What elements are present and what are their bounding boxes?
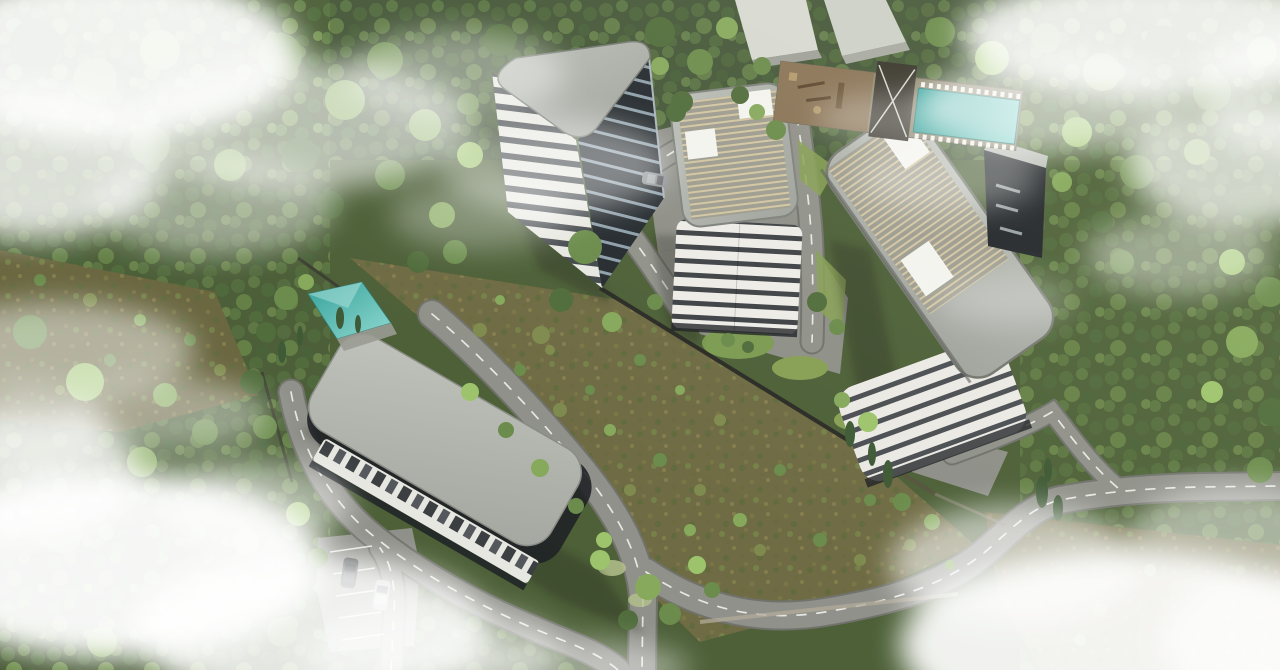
cloud-wisp xyxy=(935,274,1075,326)
aerial-render xyxy=(0,0,1280,670)
cloud-wisp xyxy=(816,94,960,142)
cloud xyxy=(160,460,350,550)
cloud-wisp xyxy=(856,146,1040,210)
cloud xyxy=(1085,215,1275,295)
cloud xyxy=(95,155,335,255)
cloud xyxy=(345,30,565,120)
cloud xyxy=(390,180,570,250)
render-canvas xyxy=(0,0,1280,670)
cloud xyxy=(890,505,1140,625)
